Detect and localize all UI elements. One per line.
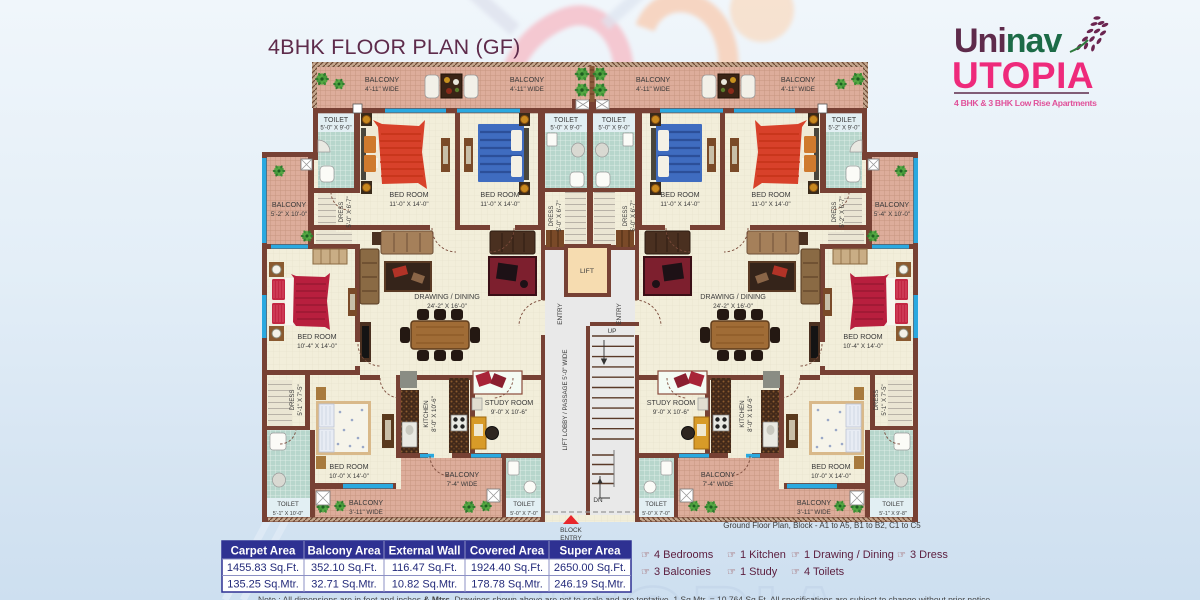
svg-text:DRESS: DRESS bbox=[339, 202, 345, 223]
svg-text:☞: ☞ bbox=[727, 550, 736, 561]
svg-text:11'-0" X 14'-0": 11'-0" X 14'-0" bbox=[389, 201, 428, 208]
svg-text:4'-11" WIDE: 4'-11" WIDE bbox=[636, 86, 670, 93]
svg-text:4 Bedrooms: 4 Bedrooms bbox=[654, 549, 714, 561]
svg-text:135.25 Sq.Mtr.: 135.25 Sq.Mtr. bbox=[227, 579, 299, 591]
svg-text:1 Kitchen: 1 Kitchen bbox=[740, 549, 786, 561]
svg-text:☞: ☞ bbox=[641, 550, 650, 561]
svg-text:UP: UP bbox=[608, 328, 617, 335]
svg-text:246.19 Sq.Mtr.: 246.19 Sq.Mtr. bbox=[554, 579, 626, 591]
svg-text:4'-11" WIDE: 4'-11" WIDE bbox=[781, 86, 815, 93]
svg-text:External Wall: External Wall bbox=[389, 546, 461, 558]
svg-text:BED ROOM: BED ROOM bbox=[811, 462, 850, 471]
svg-text:7'-4" WIDE: 7'-4" WIDE bbox=[703, 481, 734, 488]
svg-text:5'-0" X 6'-7": 5'-0" X 6'-7" bbox=[631, 200, 637, 231]
svg-text:LIFT: LIFT bbox=[580, 268, 594, 275]
svg-text:5'-0" X 7'-0": 5'-0" X 7'-0" bbox=[510, 511, 538, 517]
svg-text:5'-0" X 9'-0": 5'-0" X 9'-0" bbox=[598, 126, 629, 132]
svg-text:4'-11" WIDE: 4'-11" WIDE bbox=[365, 86, 399, 93]
svg-text:8'-0" X 10'-6": 8'-0" X 10'-6" bbox=[747, 396, 754, 432]
svg-text:BED ROOM: BED ROOM bbox=[329, 462, 368, 471]
svg-text:BALCONY: BALCONY bbox=[445, 470, 480, 479]
svg-text:KITCHEN: KITCHEN bbox=[739, 400, 746, 427]
svg-text:TOILET: TOILET bbox=[277, 501, 299, 508]
svg-text:BLOCK: BLOCK bbox=[560, 527, 582, 534]
svg-text:10'-4" X 14'-0": 10'-4" X 14'-0" bbox=[843, 343, 883, 350]
svg-text:☞: ☞ bbox=[897, 550, 906, 561]
svg-text:5'-0" X 6'-7": 5'-0" X 6'-7" bbox=[347, 196, 353, 227]
svg-text:3 Balconies: 3 Balconies bbox=[654, 566, 711, 578]
svg-text:TOILET: TOILET bbox=[645, 501, 667, 508]
svg-text:ENTRY: ENTRY bbox=[616, 302, 623, 324]
svg-text:2650.00 Sq.Ft.: 2650.00 Sq.Ft. bbox=[554, 562, 626, 574]
svg-text:5'-1" X 10'-0": 5'-1" X 10'-0" bbox=[273, 511, 304, 517]
svg-text:DRESS: DRESS bbox=[623, 206, 629, 227]
svg-text:STUDY ROOM: STUDY ROOM bbox=[647, 398, 696, 407]
svg-text:5'-2" X 10'-0": 5'-2" X 10'-0" bbox=[271, 211, 307, 218]
svg-text:116.47 Sq.Ft.: 116.47 Sq.Ft. bbox=[392, 562, 457, 574]
svg-text:10'-4" X 14'-0": 10'-4" X 14'-0" bbox=[297, 343, 337, 350]
svg-text:5'-0" X 9'-0": 5'-0" X 9'-0" bbox=[320, 126, 351, 132]
svg-text:BALCONY: BALCONY bbox=[701, 470, 736, 479]
svg-text:Carpet Area: Carpet Area bbox=[231, 546, 296, 558]
svg-text:BALCONY: BALCONY bbox=[510, 75, 545, 84]
svg-text:3'-11" WIDE: 3'-11" WIDE bbox=[797, 509, 831, 516]
svg-text:24'-2" X 16'-0": 24'-2" X 16'-0" bbox=[713, 303, 753, 310]
svg-text:BED ROOM: BED ROOM bbox=[660, 190, 699, 199]
svg-text:352.10 Sq.Ft.: 352.10 Sq.Ft. bbox=[311, 562, 377, 574]
svg-text:8'-0" X 10'-6": 8'-0" X 10'-6" bbox=[431, 396, 438, 432]
svg-text:178.78 Sq.Mtr.: 178.78 Sq.Mtr. bbox=[471, 579, 543, 591]
svg-text:1924.40 Sq.Ft.: 1924.40 Sq.Ft. bbox=[471, 562, 543, 574]
svg-text:1 Study: 1 Study bbox=[740, 566, 778, 578]
svg-text:Ground Floor Plan, Block - A1: Ground Floor Plan, Block - A1 to A5, B1 … bbox=[723, 521, 921, 530]
svg-text:DRESS: DRESS bbox=[832, 202, 838, 223]
svg-text:TOILET: TOILET bbox=[882, 501, 904, 508]
svg-text:5'-0" X 9'-0": 5'-0" X 9'-0" bbox=[550, 126, 581, 132]
svg-text:5'-1" X 7'-5": 5'-1" X 7'-5" bbox=[882, 384, 888, 415]
svg-text:10.82 Sq.Mtr.: 10.82 Sq.Mtr. bbox=[392, 579, 457, 591]
svg-text:11'-0" X 14'-0": 11'-0" X 14'-0" bbox=[660, 201, 699, 208]
svg-text:5'-2" X 9'-0": 5'-2" X 9'-0" bbox=[828, 126, 859, 132]
svg-text:☞: ☞ bbox=[641, 567, 650, 578]
svg-text:11'-0" X 14'-0": 11'-0" X 14'-0" bbox=[480, 201, 519, 208]
svg-text:BALCONY: BALCONY bbox=[636, 75, 671, 84]
svg-text:DRESS: DRESS bbox=[549, 206, 555, 227]
svg-text:9'-0" X 10'-6": 9'-0" X 10'-6" bbox=[491, 409, 527, 416]
svg-text:5'-1" X 7'-5": 5'-1" X 7'-5" bbox=[298, 384, 304, 415]
svg-text:TOILET: TOILET bbox=[513, 501, 535, 508]
svg-text:DN: DN bbox=[593, 497, 603, 504]
svg-text:☞: ☞ bbox=[791, 550, 800, 561]
svg-text:UTOPIA: UTOPIA bbox=[952, 55, 1094, 96]
svg-text:LIFT LOBBY / PASSAGE 5'-0" WID: LIFT LOBBY / PASSAGE 5'-0" WIDE bbox=[562, 349, 569, 450]
svg-text:BALCONY: BALCONY bbox=[349, 498, 384, 507]
svg-text:4BHK FLOOR PLAN (GF): 4BHK FLOOR PLAN (GF) bbox=[268, 35, 521, 59]
svg-text:BALCONY: BALCONY bbox=[365, 75, 400, 84]
svg-text:BALCONY: BALCONY bbox=[797, 498, 832, 507]
svg-text:4 Toilets: 4 Toilets bbox=[804, 566, 845, 578]
svg-text:Note : All dimensions are in f: Note : All dimensions are in feet and in… bbox=[258, 595, 992, 600]
svg-text:3'-11" WIDE: 3'-11" WIDE bbox=[349, 509, 383, 516]
svg-text:4'-11" WIDE: 4'-11" WIDE bbox=[510, 86, 544, 93]
svg-text:1455.83 Sq.Ft.: 1455.83 Sq.Ft. bbox=[227, 562, 299, 574]
svg-text:DRAWING / DINING: DRAWING / DINING bbox=[700, 292, 766, 301]
svg-text:☞: ☞ bbox=[727, 567, 736, 578]
svg-text:7'-4" WIDE: 7'-4" WIDE bbox=[447, 481, 478, 488]
svg-text:BED ROOM: BED ROOM bbox=[480, 190, 519, 199]
svg-text:5'-0" X 6'-7": 5'-0" X 6'-7" bbox=[557, 200, 563, 231]
svg-text:ENTRY: ENTRY bbox=[557, 302, 564, 324]
svg-text:DRESS: DRESS bbox=[874, 390, 880, 411]
svg-text:1 Drawing / Dining: 1 Drawing / Dining bbox=[804, 549, 894, 561]
svg-text:Balcony Area: Balcony Area bbox=[307, 546, 381, 558]
svg-text:BED ROOM: BED ROOM bbox=[751, 190, 790, 199]
svg-text:DRAWING / DINING: DRAWING / DINING bbox=[414, 292, 480, 301]
svg-text:5'-4" X 10'-0": 5'-4" X 10'-0" bbox=[874, 211, 910, 218]
svg-text:BALCONY: BALCONY bbox=[272, 200, 307, 209]
svg-text:11'-0" X 14'-0": 11'-0" X 14'-0" bbox=[751, 201, 790, 208]
svg-text:9'-0" X 10'-6": 9'-0" X 10'-6" bbox=[653, 409, 689, 416]
svg-text:☞: ☞ bbox=[791, 567, 800, 578]
svg-text:Super Area: Super Area bbox=[560, 546, 622, 558]
svg-text:5'-2" X 6'-7": 5'-2" X 6'-7" bbox=[840, 196, 846, 227]
svg-text:BED ROOM: BED ROOM bbox=[843, 332, 882, 341]
svg-text:BALCONY: BALCONY bbox=[781, 75, 816, 84]
svg-text:10'-0" X 14'-0": 10'-0" X 14'-0" bbox=[329, 473, 369, 480]
svg-text:BALCONY: BALCONY bbox=[875, 200, 910, 209]
svg-text:KITCHEN: KITCHEN bbox=[423, 400, 430, 427]
svg-text:TOILET: TOILET bbox=[832, 117, 857, 124]
svg-text:TOILET: TOILET bbox=[602, 117, 627, 124]
svg-text:DRESS: DRESS bbox=[290, 390, 296, 411]
svg-text:STUDY ROOM: STUDY ROOM bbox=[485, 398, 534, 407]
svg-text:5'-0" X 7'-0": 5'-0" X 7'-0" bbox=[642, 511, 670, 517]
svg-text:32.71 Sq.Mtr.: 32.71 Sq.Mtr. bbox=[311, 579, 376, 591]
svg-text:Covered Area: Covered Area bbox=[470, 546, 545, 558]
svg-text:24'-2" X 16'-0": 24'-2" X 16'-0" bbox=[427, 303, 467, 310]
svg-text:4 BHK & 3 BHK Low Rise Apartme: 4 BHK & 3 BHK Low Rise Apartments bbox=[954, 98, 1097, 108]
svg-text:TOILET: TOILET bbox=[324, 117, 349, 124]
svg-text:5'-1" X 9'-8": 5'-1" X 9'-8" bbox=[879, 511, 907, 517]
svg-text:BED ROOM: BED ROOM bbox=[389, 190, 428, 199]
svg-text:BED ROOM: BED ROOM bbox=[297, 332, 336, 341]
svg-text:10'-0" X 14'-0": 10'-0" X 14'-0" bbox=[811, 473, 851, 480]
svg-text:TOILET: TOILET bbox=[554, 117, 579, 124]
svg-text:3 Dress: 3 Dress bbox=[910, 549, 948, 561]
